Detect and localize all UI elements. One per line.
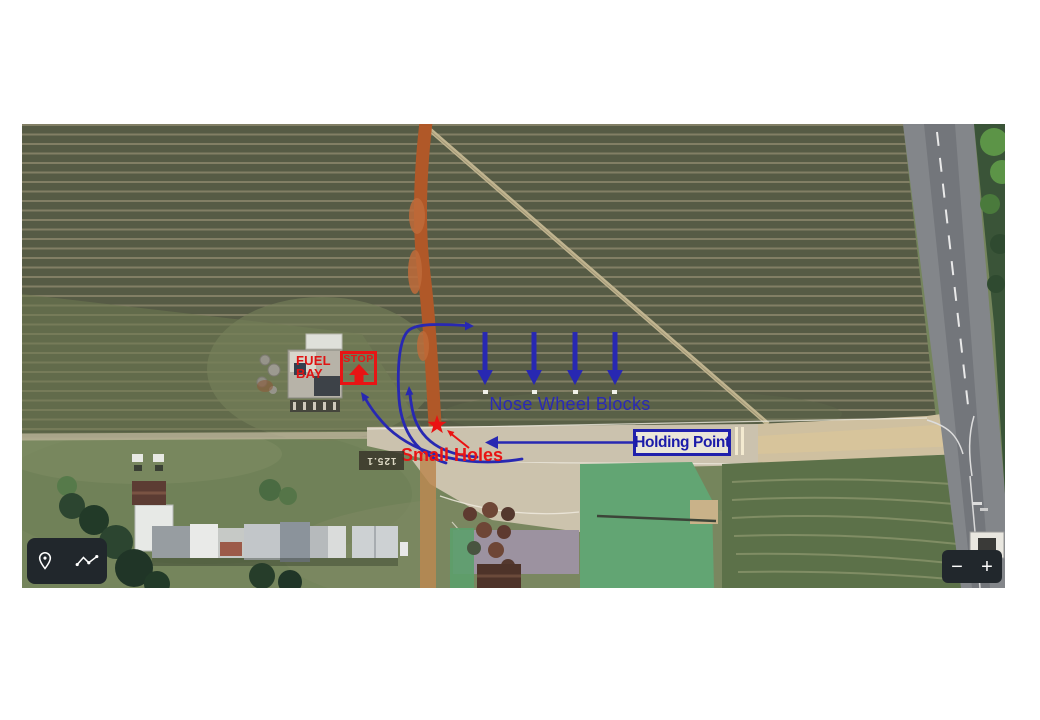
- map-annotation-toolbar: [27, 538, 107, 584]
- nose-wheel-blocks-label: Nose Wheel Blocks: [472, 394, 668, 415]
- location-pin-icon[interactable]: [32, 548, 58, 574]
- zoom-control: − +: [942, 550, 1002, 583]
- satellite-imagery: [22, 124, 1005, 588]
- satellite-map[interactable]: FUEL BAY STOP Nose Wheel Blocks Holding …: [22, 124, 1005, 588]
- fuel-bay-line2: BAY: [296, 368, 331, 381]
- stop-box: STOP: [340, 351, 377, 385]
- holding-point-label: Holding Point: [634, 434, 730, 452]
- stop-label: STOP: [343, 353, 374, 365]
- small-holes-label: Small Holes: [401, 445, 503, 466]
- terraced-paddock: [722, 454, 974, 588]
- screenshot-canvas: FUEL BAY STOP Nose Wheel Blocks Holding …: [0, 0, 1040, 720]
- zoom-out-button[interactable]: −: [944, 552, 970, 582]
- fuel-bay-label: FUEL BAY: [296, 355, 331, 380]
- route-polyline-icon[interactable]: [72, 551, 102, 571]
- zoom-in-button[interactable]: +: [974, 552, 1000, 582]
- runway-frequency-ground-marking: 125.1: [359, 451, 404, 470]
- vehicle: [400, 542, 408, 556]
- holding-point-box: Holding Point: [633, 429, 731, 456]
